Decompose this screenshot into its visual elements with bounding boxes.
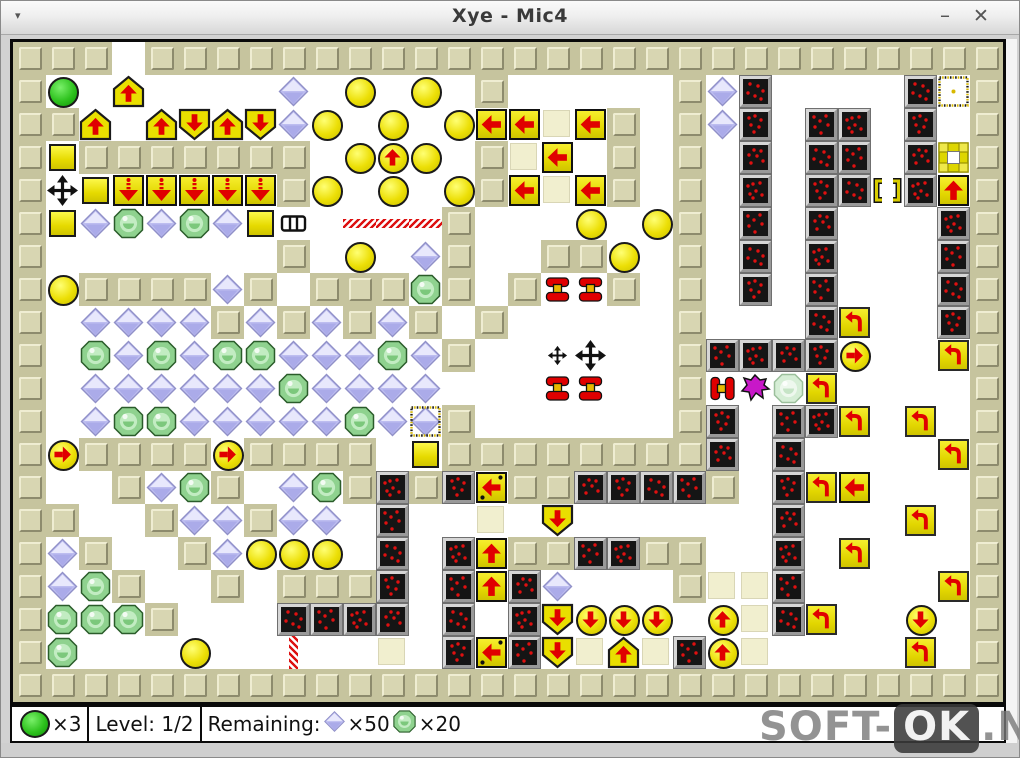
tile-purple-diamond xyxy=(409,372,442,405)
tile-floor xyxy=(442,504,475,537)
tile-floor xyxy=(244,240,277,273)
tile-purple-diamond xyxy=(409,240,442,273)
tile-floor xyxy=(409,537,442,570)
tile-purple-diamond xyxy=(145,306,178,339)
tile-floor xyxy=(79,504,112,537)
tile-mine-box xyxy=(904,174,937,207)
tile-wall xyxy=(79,273,112,306)
tile-arrow-block-left xyxy=(475,108,508,141)
tile-purple-diamond xyxy=(112,372,145,405)
tile-faded-box xyxy=(739,603,772,636)
tile-floor xyxy=(178,603,211,636)
tile-wall xyxy=(145,42,178,75)
tile-wall xyxy=(970,207,1003,240)
tile-wall xyxy=(79,141,112,174)
tile-wall xyxy=(706,471,739,504)
tile-floor xyxy=(805,570,838,603)
tile-faded-box xyxy=(376,636,409,669)
tile-floor xyxy=(937,636,970,669)
tile-wall xyxy=(13,174,46,207)
tile-purple-diamond xyxy=(277,75,310,108)
tile-floor xyxy=(871,273,904,306)
tile-enemy xyxy=(739,372,772,405)
tile-floor xyxy=(475,273,508,306)
tile-wall xyxy=(640,438,673,471)
tile-wall xyxy=(178,42,211,75)
tile-mine-box xyxy=(607,471,640,504)
lives-count: ×3 xyxy=(52,712,81,736)
tile-floor xyxy=(904,570,937,603)
tile-floor xyxy=(607,75,640,108)
tile-floor xyxy=(574,504,607,537)
tile-wall xyxy=(46,42,79,75)
tile-wall xyxy=(541,42,574,75)
game-board[interactable] xyxy=(13,42,1003,702)
tile-wall xyxy=(343,306,376,339)
tile-wall xyxy=(574,669,607,702)
tile-wall xyxy=(904,669,937,702)
tile-wall xyxy=(475,42,508,75)
tile-wall xyxy=(673,42,706,75)
tile-mine-box xyxy=(376,537,409,570)
tile-wall xyxy=(970,339,1003,372)
tile-purple-diamond xyxy=(211,207,244,240)
tile-purple-diamond xyxy=(211,372,244,405)
board-frame xyxy=(10,39,1006,705)
tile-floor xyxy=(871,240,904,273)
tile-floor xyxy=(871,372,904,405)
tile-wall xyxy=(376,669,409,702)
tile-wall xyxy=(277,438,310,471)
tile-floor xyxy=(541,405,574,438)
tile-floor xyxy=(376,75,409,108)
tile-mine-box xyxy=(805,174,838,207)
tile-floor xyxy=(112,42,145,75)
minimize-button[interactable]: – xyxy=(933,3,957,27)
tile-yellow-box xyxy=(79,174,112,207)
window-title: Xye - Mic4 xyxy=(1,5,1019,27)
tile-wall xyxy=(13,372,46,405)
tile-one-way-house-down xyxy=(178,108,211,141)
tile-wall xyxy=(13,141,46,174)
tile-floor xyxy=(739,438,772,471)
tile-arrow-block-down-dotted xyxy=(244,174,277,207)
tile-wall xyxy=(871,42,904,75)
tile-wall xyxy=(343,471,376,504)
tile-floor xyxy=(244,75,277,108)
tile-floor xyxy=(772,273,805,306)
tile-purple-diamond xyxy=(178,306,211,339)
tile-floor xyxy=(871,306,904,339)
tile-wall xyxy=(673,240,706,273)
tile-floor xyxy=(475,405,508,438)
tile-purple-diamond xyxy=(310,339,343,372)
tile-wall xyxy=(673,141,706,174)
tile-faded-box xyxy=(640,636,673,669)
tile-floor xyxy=(46,306,79,339)
tile-one-way-house-up xyxy=(607,636,640,669)
tile-wall xyxy=(640,537,673,570)
tile-wall xyxy=(211,141,244,174)
tile-floor xyxy=(838,603,871,636)
player-life-icon xyxy=(20,710,50,738)
tile-mine-box xyxy=(838,141,871,174)
tile-yellow-ball xyxy=(376,174,409,207)
tile-floor xyxy=(871,339,904,372)
tile-arrow-ball-up xyxy=(706,603,739,636)
tile-floor xyxy=(805,636,838,669)
tile-wall xyxy=(244,504,277,537)
tile-purple-diamond xyxy=(277,108,310,141)
tile-arrow-ball-down xyxy=(640,603,673,636)
tile-green-gem xyxy=(112,405,145,438)
tile-floor xyxy=(871,141,904,174)
tile-floor xyxy=(706,207,739,240)
tile-purple-diamond xyxy=(277,405,310,438)
tile-purple-diamond xyxy=(211,504,244,537)
remaining-label: Remaining: xyxy=(208,712,321,736)
tile-wall xyxy=(970,537,1003,570)
tile-mine-box xyxy=(574,471,607,504)
tile-floor xyxy=(475,207,508,240)
tile-purple-diamond xyxy=(145,372,178,405)
tile-wall xyxy=(442,339,475,372)
tile-floor xyxy=(937,537,970,570)
tile-yellow-ball xyxy=(442,108,475,141)
tile-floor xyxy=(904,438,937,471)
tile-floor xyxy=(508,372,541,405)
tile-floor xyxy=(574,141,607,174)
gems-remaining: ×20 xyxy=(419,712,461,736)
tile-floor xyxy=(409,108,442,141)
tile-wall xyxy=(970,372,1003,405)
tile-floor xyxy=(607,570,640,603)
tile-floor xyxy=(772,306,805,339)
tile-wall xyxy=(607,108,640,141)
tile-mine-box xyxy=(442,471,475,504)
tile-purple-diamond xyxy=(178,504,211,537)
tile-faded-box xyxy=(475,504,508,537)
tile-wall xyxy=(541,240,574,273)
tile-mine-box xyxy=(805,108,838,141)
tile-floor xyxy=(904,240,937,273)
tile-floor xyxy=(145,75,178,108)
tile-turner-block xyxy=(805,471,838,504)
tile-mine-box xyxy=(673,471,706,504)
tile-wall xyxy=(475,306,508,339)
tile-yellow-ball xyxy=(640,207,673,240)
tile-floor xyxy=(607,504,640,537)
tile-floor xyxy=(706,504,739,537)
tile-wall xyxy=(673,372,706,405)
tile-wall xyxy=(970,174,1003,207)
tile-wall xyxy=(574,42,607,75)
tile-arrow-block-up xyxy=(475,537,508,570)
tile-wall xyxy=(46,504,79,537)
tile-wall xyxy=(970,669,1003,702)
tile-floor xyxy=(772,636,805,669)
tile-wall xyxy=(541,438,574,471)
tile-floor xyxy=(640,306,673,339)
tile-mine-box xyxy=(508,636,541,669)
tile-arrow-ball-right xyxy=(838,339,871,372)
tile-floor xyxy=(640,570,673,603)
tile-wall xyxy=(145,438,178,471)
tile-arrow-block-down-dotted xyxy=(112,174,145,207)
tile-wall xyxy=(970,273,1003,306)
tile-floor xyxy=(244,570,277,603)
tile-arrow-block-left xyxy=(541,141,574,174)
watermark-ok-badge: OK xyxy=(894,704,979,753)
tile-floor xyxy=(838,372,871,405)
tile-mine-box xyxy=(739,141,772,174)
tile-floor xyxy=(145,570,178,603)
lives-section: ×3 xyxy=(12,707,89,741)
tile-mine-box xyxy=(343,603,376,636)
tile-wall xyxy=(13,339,46,372)
tile-mine-box xyxy=(805,405,838,438)
tile-arrow-ball-right xyxy=(211,438,244,471)
tile-floor xyxy=(145,636,178,669)
tile-wall xyxy=(13,273,46,306)
tile-mine-box xyxy=(706,405,739,438)
tile-floor xyxy=(211,636,244,669)
tile-mine-box xyxy=(739,174,772,207)
tile-wall xyxy=(277,570,310,603)
tile-purple-diamond xyxy=(46,537,79,570)
tile-purple-diamond-marked xyxy=(409,405,442,438)
tile-floor xyxy=(838,504,871,537)
tile-wall xyxy=(706,42,739,75)
tile-wall xyxy=(970,636,1003,669)
tile-wall xyxy=(607,141,640,174)
tile-floor xyxy=(838,570,871,603)
tile-floor xyxy=(937,108,970,141)
tile-green-gem xyxy=(376,339,409,372)
tile-yellow-ball xyxy=(310,174,343,207)
tile-floor xyxy=(574,75,607,108)
tile-wall xyxy=(79,537,112,570)
tile-faded-box xyxy=(574,636,607,669)
tile-mine-box xyxy=(739,339,772,372)
tile-floor xyxy=(904,537,937,570)
tile-wall xyxy=(277,240,310,273)
tile-mine-box xyxy=(937,273,970,306)
tile-floor xyxy=(409,174,442,207)
tile-wall xyxy=(211,306,244,339)
tile-purple-diamond xyxy=(277,471,310,504)
tile-floor xyxy=(574,570,607,603)
tile-floor xyxy=(871,570,904,603)
tile-wall xyxy=(46,669,79,702)
tile-wall xyxy=(772,42,805,75)
tile-wall xyxy=(640,669,673,702)
tile-floor xyxy=(937,471,970,504)
tile-wall xyxy=(970,75,1003,108)
tile-yellow-ball xyxy=(409,75,442,108)
tile-wall xyxy=(970,141,1003,174)
tile-mine-box xyxy=(442,603,475,636)
tile-floor xyxy=(904,207,937,240)
tile-wall xyxy=(277,141,310,174)
tile-wall xyxy=(871,669,904,702)
tile-wall xyxy=(574,438,607,471)
tile-turner-block xyxy=(904,504,937,537)
tile-floor xyxy=(673,504,706,537)
tile-one-way-house-down xyxy=(244,108,277,141)
close-button[interactable]: ✕ xyxy=(969,5,993,27)
tile-purple-diamond xyxy=(376,372,409,405)
tile-mine-box xyxy=(772,570,805,603)
tile-floor xyxy=(310,207,343,240)
tile-purple-diamond xyxy=(376,405,409,438)
tile-wall xyxy=(937,669,970,702)
tile-one-way-house-up xyxy=(145,108,178,141)
tile-mine-box xyxy=(772,405,805,438)
tile-wall xyxy=(607,273,640,306)
tile-magnet-vertical xyxy=(541,273,574,306)
tile-wall xyxy=(310,438,343,471)
tile-wall xyxy=(277,669,310,702)
tile-green-gem xyxy=(112,603,145,636)
tile-floor xyxy=(640,75,673,108)
tile-turner-block xyxy=(805,372,838,405)
tile-arrow-ball-up xyxy=(376,141,409,174)
tile-wall xyxy=(244,669,277,702)
tile-wall xyxy=(277,306,310,339)
tile-wall xyxy=(508,438,541,471)
tile-wall xyxy=(673,669,706,702)
tile-wall xyxy=(112,669,145,702)
tile-wall xyxy=(442,438,475,471)
tile-wall xyxy=(970,603,1003,636)
tile-floor xyxy=(772,207,805,240)
tile-mine-box xyxy=(904,108,937,141)
tile-mine-box xyxy=(607,537,640,570)
tile-purple-diamond xyxy=(343,339,376,372)
tile-wall xyxy=(343,438,376,471)
tile-wall xyxy=(376,273,409,306)
tile-floor xyxy=(46,240,79,273)
tile-wall xyxy=(343,273,376,306)
tile-turner-block xyxy=(937,438,970,471)
tile-wall xyxy=(79,42,112,75)
tile-mine-box xyxy=(904,141,937,174)
tile-purple-diamond xyxy=(277,339,310,372)
tile-mine-box xyxy=(805,306,838,339)
tile-floor xyxy=(838,240,871,273)
tile-wall xyxy=(112,471,145,504)
tile-wall xyxy=(244,438,277,471)
tile-green-gem xyxy=(79,339,112,372)
tile-purple-diamond xyxy=(211,405,244,438)
diamonds-remaining: ×50 xyxy=(348,712,390,736)
tile-wall xyxy=(442,42,475,75)
tile-floor xyxy=(607,339,640,372)
tile-floor xyxy=(838,438,871,471)
tile-wall xyxy=(244,141,277,174)
tile-yellow-ball xyxy=(277,537,310,570)
tile-wall xyxy=(673,306,706,339)
tile-mine-box xyxy=(937,240,970,273)
tile-wall xyxy=(673,273,706,306)
tile-purple-diamond xyxy=(79,405,112,438)
tile-wall xyxy=(475,174,508,207)
tile-faded-box xyxy=(706,570,739,603)
tile-wall xyxy=(475,75,508,108)
tile-floor xyxy=(706,273,739,306)
tile-floor xyxy=(475,339,508,372)
tile-floor xyxy=(541,306,574,339)
tile-wall xyxy=(112,438,145,471)
tile-purple-diamond xyxy=(310,504,343,537)
tile-floor xyxy=(541,75,574,108)
tile-faded-box xyxy=(739,570,772,603)
tile-wall xyxy=(310,669,343,702)
tile-wall xyxy=(607,174,640,207)
tile-wall xyxy=(673,405,706,438)
tile-floor xyxy=(706,141,739,174)
tile-wall xyxy=(13,42,46,75)
tile-wall xyxy=(112,141,145,174)
tile-green-gem xyxy=(178,207,211,240)
tile-floor xyxy=(805,504,838,537)
app-window: ▾ Xye - Mic4 – ✕ ×3 Level: 1/2 Remaining… xyxy=(0,0,1020,758)
tile-wall xyxy=(508,273,541,306)
tile-floor xyxy=(442,141,475,174)
tile-floor xyxy=(409,603,442,636)
tile-floor xyxy=(178,240,211,273)
tile-wall xyxy=(13,537,46,570)
tile-wall xyxy=(607,438,640,471)
tile-floor xyxy=(739,306,772,339)
tile-floor xyxy=(640,108,673,141)
tile-wall xyxy=(79,438,112,471)
tile-floor xyxy=(145,240,178,273)
tile-faded-box xyxy=(541,174,574,207)
tile-wall xyxy=(442,273,475,306)
tile-wall xyxy=(508,471,541,504)
tile-floor xyxy=(508,240,541,273)
tile-floor xyxy=(244,636,277,669)
tile-mine-box xyxy=(772,471,805,504)
tile-floor xyxy=(904,273,937,306)
tile-wall xyxy=(541,537,574,570)
tile-wall xyxy=(673,207,706,240)
tile-floor xyxy=(310,75,343,108)
tile-mine-box xyxy=(442,636,475,669)
tile-mine-box xyxy=(739,108,772,141)
tile-wall xyxy=(970,108,1003,141)
tile-floor xyxy=(871,603,904,636)
tile-wall xyxy=(508,537,541,570)
tile-turner-block xyxy=(838,537,871,570)
tile-wall xyxy=(541,669,574,702)
tile-grill xyxy=(277,207,310,240)
tile-arrow-block-left-dotted xyxy=(475,471,508,504)
tile-mine-box xyxy=(640,471,673,504)
tile-wall xyxy=(13,471,46,504)
tile-wall xyxy=(673,174,706,207)
tile-wall xyxy=(244,42,277,75)
tile-mine-box xyxy=(508,570,541,603)
tile-floor xyxy=(772,108,805,141)
tile-yellow-ball xyxy=(310,108,343,141)
tile-floor xyxy=(937,405,970,438)
tile-yellow-ball xyxy=(244,537,277,570)
tile-green-gem xyxy=(211,339,244,372)
tile-wall xyxy=(310,42,343,75)
